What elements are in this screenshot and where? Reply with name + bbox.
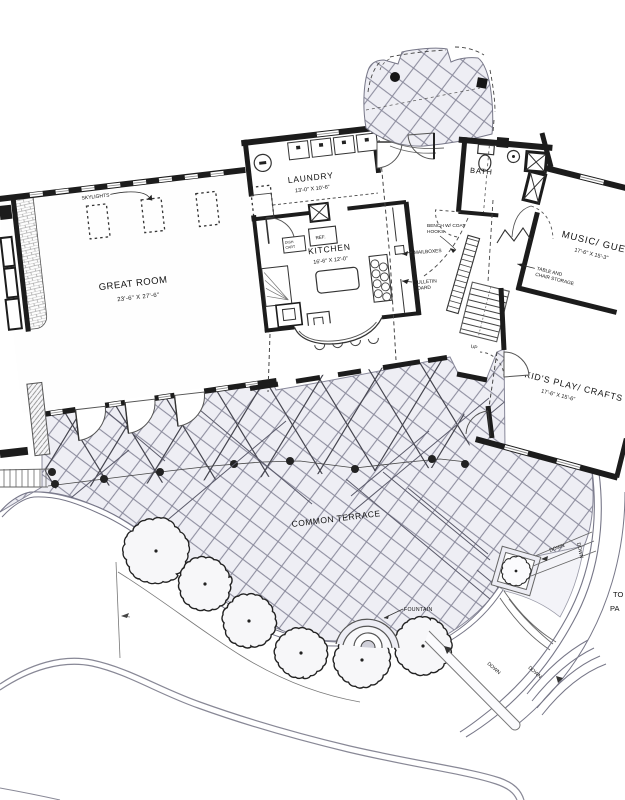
svg-text:TO: TO bbox=[613, 590, 623, 599]
svg-text:FOUNTAIN: FOUNTAIN bbox=[404, 607, 433, 613]
svg-text:BOARD: BOARD bbox=[414, 285, 432, 292]
svg-text:PA: PA bbox=[610, 604, 619, 613]
svg-text:BENCH W/ COAT: BENCH W/ COAT bbox=[427, 223, 465, 229]
svg-text:HOOKS: HOOKS bbox=[427, 229, 444, 235]
